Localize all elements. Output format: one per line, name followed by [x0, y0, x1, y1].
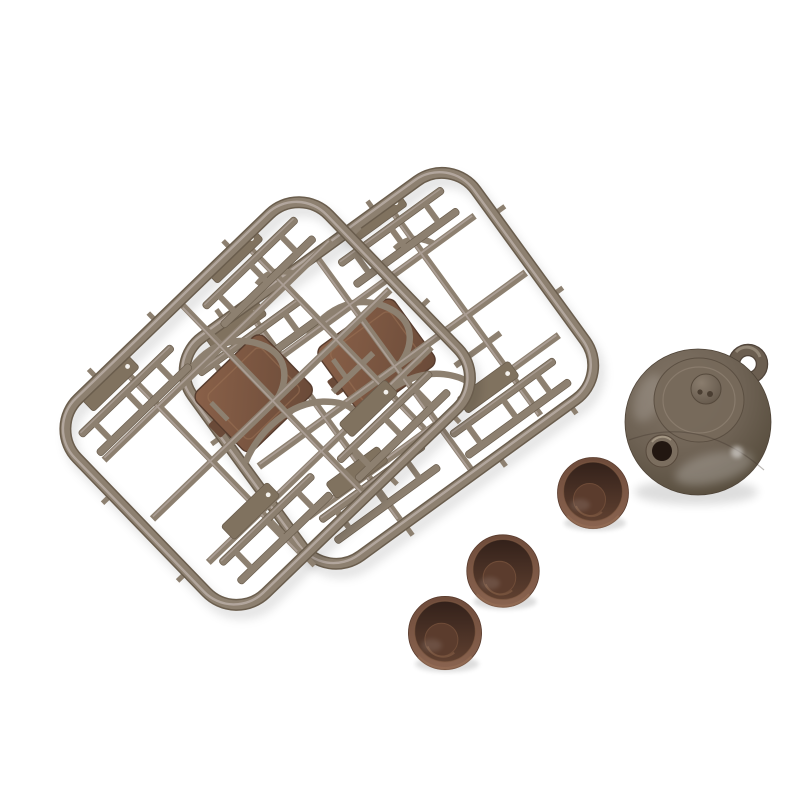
product-photo — [0, 0, 800, 800]
teapot — [625, 347, 771, 505]
tea-cup-1 — [558, 458, 629, 532]
photo-scene — [0, 0, 800, 800]
tea-cup-3 — [408, 596, 481, 672]
teapot-specular-spot — [731, 446, 743, 458]
teapot-knob-detail — [707, 391, 713, 397]
tea-cup-2 — [467, 535, 539, 610]
teapot-knob — [691, 374, 721, 404]
teapot-knob-detail — [697, 389, 702, 394]
teapot-spout-hole — [652, 441, 672, 461]
